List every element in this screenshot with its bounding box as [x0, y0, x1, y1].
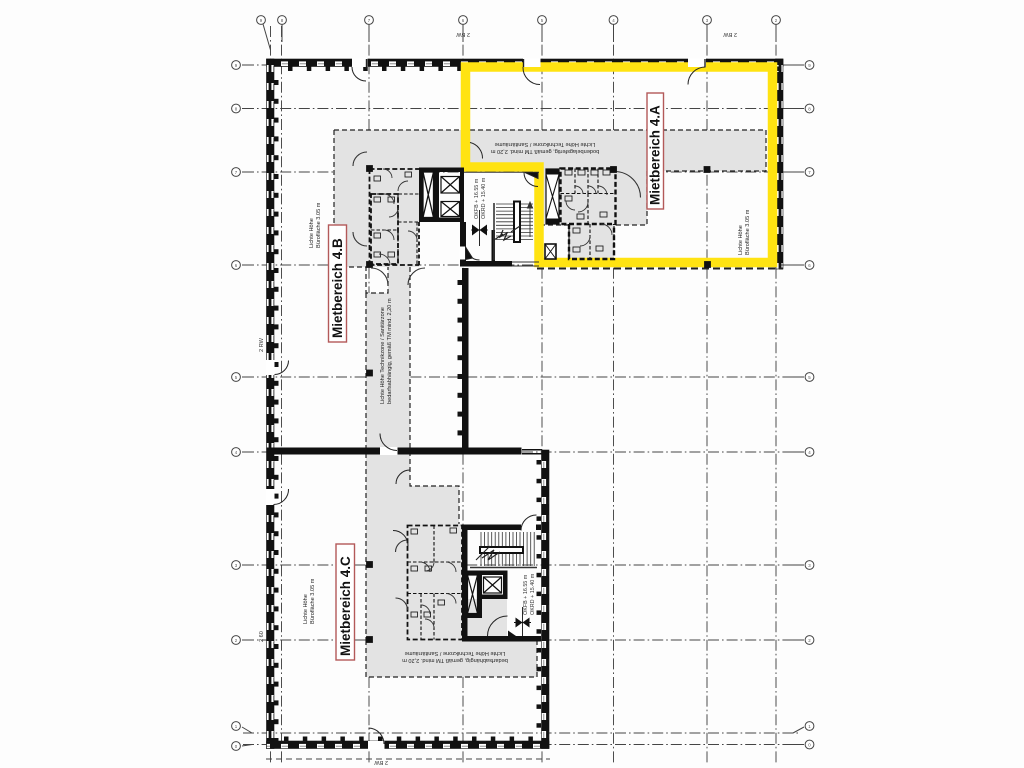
svg-text:Mietbereich 4.C: Mietbereich 4.C: [338, 556, 353, 656]
svg-text:Bürofläche 3.05 m: Bürofläche 3.05 m: [745, 209, 751, 255]
svg-text:Bürofläche 3.05 m: Bürofläche 3.05 m: [316, 202, 322, 248]
svg-text:2 BW: 2 BW: [374, 759, 388, 765]
svg-text:OKRD + 15.40 m: OKRD + 15.40 m: [481, 177, 487, 219]
svg-text:OKRD + 15.40 m: OKRD + 15.40 m: [530, 573, 536, 615]
svg-text:2 RW: 2 RW: [259, 337, 265, 352]
svg-text:Mietbereich 4.A: Mietbereich 4.A: [648, 105, 663, 205]
svg-text:Lichte Höhe Technikzone / Sani: Lichte Höhe Technikzone / Sanitärräume: [495, 141, 596, 147]
svg-text:2 60: 2 60: [259, 631, 265, 642]
svg-text:bedarfsabhängig, gemäß TM mind: bedarfsabhängig, gemäß TM mind. 2,20 m: [402, 657, 508, 663]
svg-text:Bürofläche 3.05 m: Bürofläche 3.05 m: [310, 578, 316, 624]
svg-text:OKFB + 16.55 m: OKFB + 16.55 m: [523, 574, 529, 615]
svg-text:bedarfsabhängig, gemäß TM mind: bedarfsabhängig, gemäß TM mind. 2,20 m: [387, 298, 393, 404]
svg-text:Mietbereich 4.B: Mietbereich 4.B: [330, 238, 345, 338]
svg-text:Lichte Höhe: Lichte Höhe: [309, 218, 315, 248]
svg-text:Lichte Höhe Technikzone / Sani: Lichte Höhe Technikzone / Sanitärzone: [380, 307, 386, 404]
svg-text:Lichte Höhe Technikzone / Sani: Lichte Höhe Technikzone / Sanitärräume: [405, 650, 506, 656]
svg-text:2 BW: 2 BW: [456, 31, 470, 37]
svg-text:2 BW: 2 BW: [723, 31, 737, 37]
svg-text:Lichte Höhe: Lichte Höhe: [303, 594, 309, 624]
svg-text:bodenbelagsfertig, gemäß TM mi: bodenbelagsfertig, gemäß TM mind. 2,20 m: [490, 148, 599, 154]
svg-text:Lichte Höhe: Lichte Höhe: [738, 225, 744, 255]
